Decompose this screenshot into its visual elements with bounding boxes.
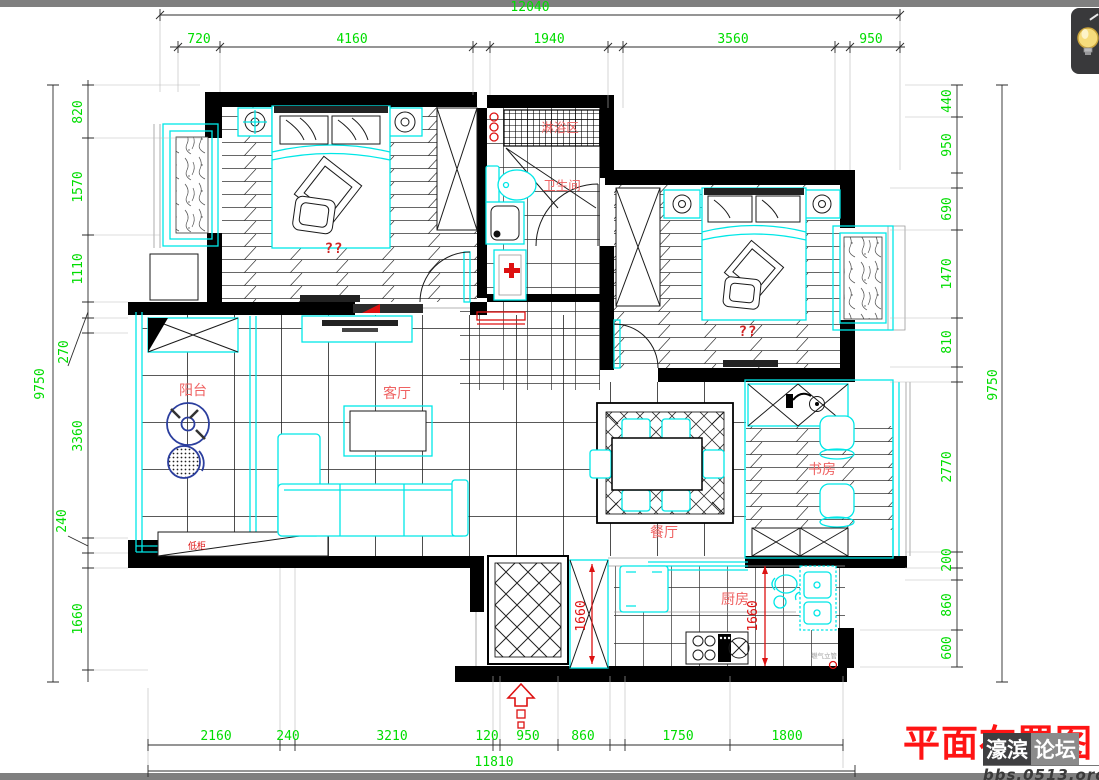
svg-text:3560: 3560: [717, 32, 748, 47]
low-cabinet-label: 低柜: [188, 540, 206, 552]
svg-text:2770: 2770: [940, 451, 955, 482]
chair: [703, 450, 724, 478]
dim-right-overall: 9750: [986, 369, 1001, 400]
bed-bench: [723, 360, 778, 367]
forum-image-viewer: ?? 淋浴区 卫生间: [0, 0, 1099, 780]
svg-text:860: 860: [940, 593, 955, 616]
svg-text:1660: 1660: [71, 603, 86, 634]
svg-text:1110: 1110: [71, 253, 86, 284]
svg-text:3360: 3360: [71, 420, 86, 451]
svg-text:720: 720: [187, 32, 210, 47]
marble-pier-west: [176, 137, 208, 233]
planter: [168, 446, 200, 478]
svg-text:1470: 1470: [940, 258, 955, 289]
study-window: [893, 382, 899, 556]
svg-text:1570: 1570: [71, 171, 86, 202]
svg-text:690: 690: [940, 197, 955, 220]
entry-arrow: [508, 684, 534, 706]
svg-text:3210: 3210: [376, 729, 407, 744]
svg-text:1750: 1750: [662, 729, 693, 744]
svg-text:810: 810: [940, 330, 955, 353]
dim-left-overall: 9750: [33, 368, 48, 399]
dim-top-overall: 12040: [510, 0, 549, 15]
bedroom1-label: ??: [325, 241, 344, 257]
nightstand: [804, 190, 840, 218]
svg-text:860: 860: [571, 729, 594, 744]
nightstand: [664, 190, 700, 218]
watermark: 濠滨 论坛 bbs.0513.org: [983, 733, 1099, 780]
entry-red-dim: 1660: [574, 600, 589, 631]
svg-text:240: 240: [276, 729, 299, 744]
entry-mat: [495, 563, 561, 657]
svg-text:820: 820: [71, 100, 86, 123]
study-label: 书房: [808, 462, 836, 478]
bed-bench: [300, 295, 360, 302]
svg-text:240: 240: [55, 509, 70, 532]
chair: [590, 450, 611, 478]
watermark-name-2: 论坛: [1031, 733, 1079, 765]
chair: [622, 490, 650, 511]
shaft: [150, 254, 198, 300]
marble-pier-east: [844, 237, 882, 319]
entry-area: [488, 556, 608, 728]
svg-text:950: 950: [859, 32, 882, 47]
svg-text:950: 950: [940, 133, 955, 156]
tv: [322, 320, 398, 326]
balcony-label: 阳台: [179, 383, 207, 399]
lightbulb-icon: [1071, 8, 1099, 74]
svg-text:4160: 4160: [336, 32, 367, 47]
desk-chair: [820, 416, 854, 450]
svg-text:600: 600: [940, 636, 955, 659]
kitchen-red-dim: 1660: [746, 600, 761, 631]
balcony-window-west: [136, 312, 142, 552]
dining-table: [612, 438, 702, 490]
bathroom-label: 卫生间: [543, 178, 581, 193]
coffee-table: [350, 411, 426, 451]
gas-riser-label: 燃气立管: [811, 651, 838, 660]
svg-text:440: 440: [940, 89, 955, 112]
svg-text:200: 200: [940, 548, 955, 571]
shower-label: 淋浴区: [541, 120, 579, 135]
dining-set: [590, 403, 733, 523]
floor-plan-drawing: ?? 淋浴区 卫生间: [0, 0, 1099, 780]
chair: [622, 419, 650, 440]
svg-text:2160: 2160: [200, 729, 231, 744]
chair: [662, 490, 690, 511]
desk-chair: [820, 484, 854, 518]
living-label: 客厅: [383, 385, 411, 402]
bedroom2-label: ??: [739, 324, 758, 340]
svg-text:950: 950: [516, 729, 539, 744]
fridge: [620, 566, 668, 612]
dining-label: 餐厅: [650, 525, 678, 541]
svg-text:1800: 1800: [771, 729, 802, 744]
sofa-arm: [452, 480, 468, 536]
watermark-name-1: 濠滨: [983, 733, 1031, 765]
kitchen-label: 厨房: [721, 592, 749, 608]
watermark-url: bbs.0513.org: [983, 765, 1099, 780]
svg-text:1940: 1940: [533, 32, 564, 47]
lightbulb-button[interactable]: [1071, 8, 1099, 74]
sofa: [278, 484, 466, 536]
svg-text:120: 120: [475, 729, 498, 744]
dim-bottom-overall: 11810: [474, 755, 513, 770]
toilet-tank: [486, 166, 499, 204]
chair: [662, 419, 690, 440]
